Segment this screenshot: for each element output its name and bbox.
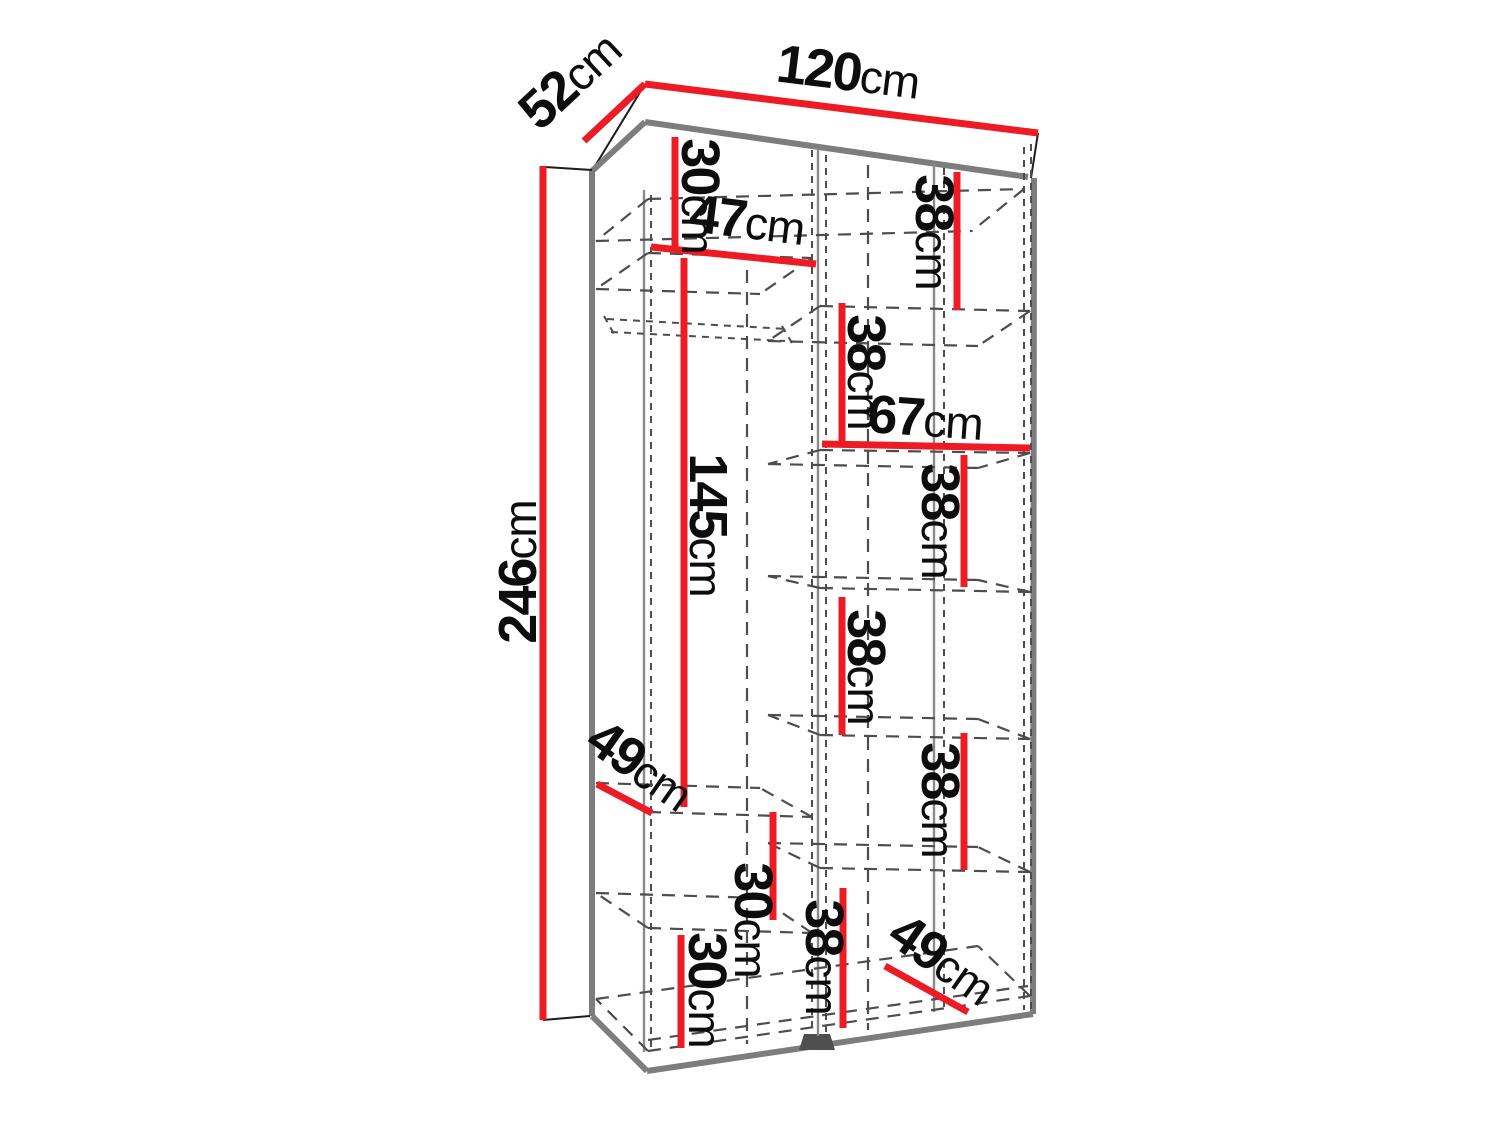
dimension-label-right-section-width-67: 67cm [866,384,985,452]
dimension-label-depth-top: 52cm [507,19,632,142]
dimension-label-left-cubby-30-bottom: 30cm [677,932,737,1047]
dimension-label-bottom-cubby-38: 38cm [794,899,854,1014]
dimension-label-hanging-height-145: 145cm [678,453,738,596]
hanging-rod [604,316,792,343]
dimension-label-right-cubby-38-3: 38cm [910,463,970,578]
dimension-label-width-top: 120cm [773,34,923,111]
dimension-label-right-cubby-38-1: 38cm [904,174,964,289]
cabinet-foot [799,1034,835,1050]
dimension-label-right-cubby-38-4: 38cm [836,609,896,724]
dimension-label-right-cubby-38-5: 38cm [910,742,970,857]
diagram-canvas: 120cm52cm246cm30cm47cm38cm38cm67cm38cm38… [0,0,1500,1125]
dimension-ticks [543,167,592,1020]
wardrobe-dimension-diagram: 120cm52cm246cm30cm47cm38cm38cm67cm38cm38… [0,0,1500,1125]
dimension-label-height-left: 246cm [488,500,548,643]
dimension-labels: 120cm52cm246cm30cm47cm38cm38cm67cm38cm38… [488,19,1007,1048]
